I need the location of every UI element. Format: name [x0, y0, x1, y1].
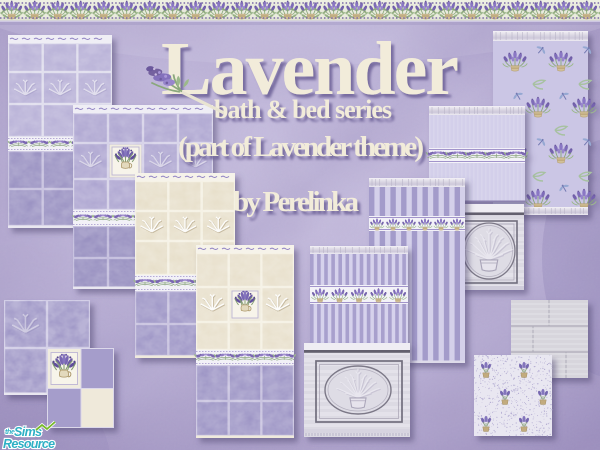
svg-text:(part of Lavender theme): (part of Lavender theme) — [178, 131, 424, 163]
svg-text:bath & bed series: bath & bed series — [214, 95, 392, 124]
svg-text:Resource: Resource — [3, 437, 55, 450]
svg-text:by Perelinka: by Perelinka — [233, 186, 360, 218]
